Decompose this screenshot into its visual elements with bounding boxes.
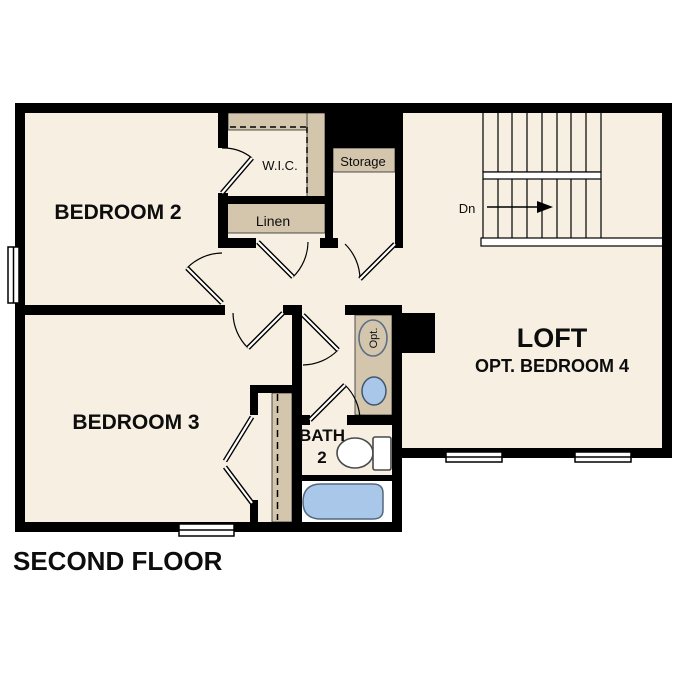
void-chase — [402, 313, 435, 353]
window-loft-left — [446, 452, 502, 462]
wall — [292, 305, 302, 532]
wall — [302, 475, 392, 481]
bedroom3-label: BEDROOM 3 — [72, 411, 199, 434]
storage-label: Storage — [340, 154, 386, 169]
wall — [15, 103, 25, 532]
wic-label: W.I.C. — [262, 158, 297, 173]
wall — [345, 305, 402, 315]
floor-plan-page: BEDROOM 2 BEDROOM 3 LOFT OPT. BEDROOM 4 … — [0, 0, 687, 687]
wall — [218, 196, 333, 204]
wall — [302, 415, 310, 425]
linen-label: Linen — [256, 213, 290, 229]
wall — [218, 113, 228, 148]
wall — [325, 113, 333, 248]
optional-sink-label: Opt. — [368, 328, 380, 349]
page-title: SECOND FLOOR — [13, 546, 223, 576]
wic-shelf-right — [307, 113, 325, 203]
window-loft-right — [575, 452, 631, 462]
wall — [15, 103, 672, 113]
bathtub-icon — [303, 484, 383, 519]
bath-label-line1: BATH — [299, 426, 345, 445]
loft-option-label: OPT. BEDROOM 4 — [475, 356, 629, 376]
loft-label: LOFT — [517, 323, 588, 353]
window-bedroom2-left — [8, 247, 19, 303]
wall — [347, 415, 392, 425]
void-above-storage — [333, 113, 403, 148]
window-bedroom3-bottom — [179, 524, 234, 536]
stair-dn-label: Dn — [459, 201, 476, 216]
bedroom2-label: BEDROOM 2 — [54, 201, 181, 224]
bedroom3-closet-strip — [272, 393, 292, 522]
bath-label-line2: 2 — [317, 448, 326, 467]
wall — [395, 113, 403, 248]
wall — [662, 103, 672, 458]
wall — [218, 238, 256, 248]
wall — [392, 313, 402, 532]
stair-landing-rail — [483, 172, 601, 179]
floor-plan-drawing: BEDROOM 2 BEDROOM 3 LOFT OPT. BEDROOM 4 … — [0, 0, 687, 687]
wall — [250, 385, 258, 415]
wall — [15, 305, 225, 315]
stair-bottom-rail — [481, 238, 667, 246]
sink-icon — [362, 377, 386, 405]
toilet-tank — [373, 437, 391, 470]
